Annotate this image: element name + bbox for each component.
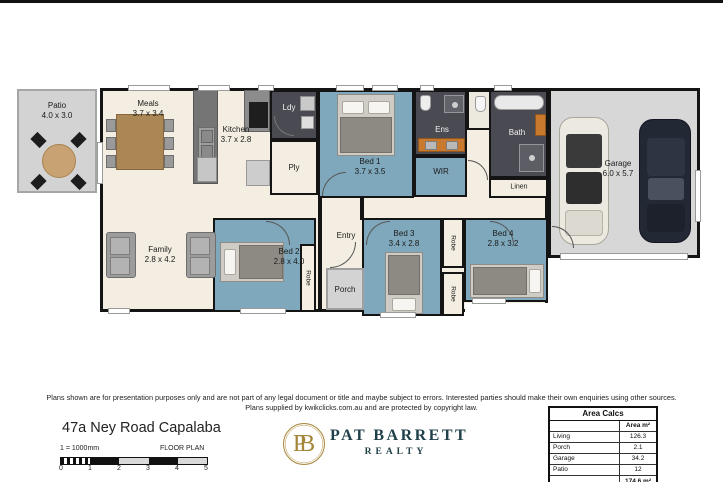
bed1-blanket xyxy=(340,117,392,153)
agency-brand: PAT BARRETT REALTY xyxy=(330,427,462,457)
car-white-roof xyxy=(566,134,602,168)
dining-chair xyxy=(164,119,174,132)
scale-segment xyxy=(119,458,148,464)
area-table-title: Area Calcs xyxy=(550,408,656,421)
car-dark xyxy=(639,119,691,243)
area-total-value: 174.6 m² xyxy=(619,476,656,482)
disclaimer-line1: Plans shown are for presentation purpose… xyxy=(0,393,723,402)
room-label-patio: Patio 4.0 x 3.0 xyxy=(42,101,73,121)
patio-chair xyxy=(70,132,86,148)
patio-dims: 4.0 x 3.0 xyxy=(42,111,73,121)
family-name: Family xyxy=(145,245,176,255)
ens-shower xyxy=(444,95,464,113)
room-label-family: Family 2.8 x 4.2 xyxy=(145,245,176,265)
car-dark-windshield xyxy=(648,178,684,200)
bed1-dims: 3.7 x 3.5 xyxy=(355,167,386,177)
window xyxy=(108,308,130,314)
area-row-label: Porch xyxy=(550,443,619,453)
window xyxy=(336,85,364,91)
ens-toilet xyxy=(420,95,431,111)
dining-chair xyxy=(164,137,174,150)
room-label-robe-lower: Robe xyxy=(450,286,457,302)
bed3-pillow xyxy=(392,298,416,311)
window xyxy=(494,85,512,91)
area-row-value: 2.1 xyxy=(619,443,656,453)
room-label-laundry: Ldy xyxy=(283,103,296,113)
bed4-bed xyxy=(470,264,544,298)
room-label-bed3: Bed 3 3.4 x 2.8 xyxy=(389,229,420,249)
scale-segment xyxy=(61,458,90,464)
area-table-row: Garage 34.2 xyxy=(550,454,656,465)
bath-name: Bath xyxy=(509,128,525,137)
car-white-sunroof xyxy=(566,172,602,204)
bed3-dims: 3.4 x 2.8 xyxy=(389,239,420,249)
area-row-value: 12 xyxy=(619,465,656,475)
wir-name: WIR xyxy=(433,167,449,176)
sofa-cushion xyxy=(110,237,130,255)
scale-tick: 0 xyxy=(59,465,63,472)
bed4-name: Bed 4 xyxy=(488,229,519,239)
patio-chair xyxy=(30,132,46,148)
room-wc xyxy=(467,90,491,130)
bed1-pillow xyxy=(368,101,390,114)
scale-ratio-label: 1 = 1000mm xyxy=(60,445,99,452)
kitchen-fridge xyxy=(246,160,270,186)
bed1-pillow xyxy=(342,101,364,114)
sofa-cushion xyxy=(110,257,130,275)
garage-dims: 6.0 x 5.7 xyxy=(603,169,634,179)
patio-chair xyxy=(30,174,46,190)
bath-shower xyxy=(519,144,544,172)
room-label-porch: Porch xyxy=(335,285,356,295)
scale-tick: 4 xyxy=(175,465,179,472)
area-table-row: Porch 2.1 xyxy=(550,443,656,454)
footer-divider xyxy=(0,0,723,3)
laundry-tub xyxy=(301,116,314,129)
room-label-pantry: Ply xyxy=(288,163,299,173)
sofa-cushion xyxy=(190,237,210,255)
car-white-hood xyxy=(565,210,603,236)
garage-window xyxy=(695,170,701,222)
garage-name: Garage xyxy=(603,159,634,169)
bath-cabinet xyxy=(535,114,546,136)
area-header-spacer xyxy=(550,421,619,431)
bed3-blanket xyxy=(388,255,420,295)
garage-door-opening xyxy=(560,253,688,260)
dining-table xyxy=(116,114,164,170)
window xyxy=(128,85,170,91)
bed3-name: Bed 3 xyxy=(389,229,420,239)
patio-table xyxy=(42,144,76,178)
bath-tub xyxy=(494,95,544,110)
window xyxy=(258,85,274,91)
scale-segment xyxy=(90,458,119,464)
room-label-garage: Garage 6.0 x 5.7 xyxy=(603,159,634,179)
car-dark-hood xyxy=(647,204,685,232)
dining-chair xyxy=(164,155,174,168)
patio-chair xyxy=(70,174,86,190)
room-label-linen: Linen xyxy=(510,184,527,193)
patio-name: Patio xyxy=(42,101,73,111)
family-sofa xyxy=(186,232,216,278)
agency-name: PAT BARRETT xyxy=(330,427,462,445)
room-label-ensuite: Ens xyxy=(435,125,449,135)
sink-bowl xyxy=(201,130,213,143)
car-dark-roof xyxy=(647,138,685,176)
exterior-mask xyxy=(465,303,548,313)
area-row-value: 34.2 xyxy=(619,454,656,464)
robe-name: Robe xyxy=(450,286,457,302)
property-address: 47a Ney Road Capalaba xyxy=(62,420,221,436)
ens-basin xyxy=(425,141,437,150)
room-label-bath: Bath xyxy=(509,128,525,138)
area-row-label: Patio xyxy=(550,465,619,475)
bed3-bed xyxy=(385,252,423,314)
area-row-label: Garage xyxy=(550,454,619,464)
scale-tick: 2 xyxy=(117,465,121,472)
room-label-bed2-robe: Robe xyxy=(305,270,312,286)
window xyxy=(472,298,506,304)
window xyxy=(240,308,286,314)
room-label-bed1: Bed 1 3.7 x 3.5 xyxy=(355,157,386,177)
meals-dims: 3.7 x 3.4 xyxy=(133,109,164,119)
scale-tick: 1 xyxy=(88,465,92,472)
area-total-spacer xyxy=(550,476,619,482)
ens-name: Ens xyxy=(435,125,449,134)
bed2-pillow xyxy=(224,249,236,275)
bed2-dims: 2.8 x 4.0 xyxy=(274,257,305,267)
entry-name: Entry xyxy=(337,231,356,240)
room-label-entry: Entry xyxy=(337,231,356,241)
plan-type-label: FLOOR PLAN xyxy=(160,445,204,452)
dining-chair xyxy=(106,155,116,168)
room-label-meals: Meals 3.7 x 3.4 xyxy=(133,99,164,119)
area-row-label: Living xyxy=(550,432,619,442)
agency-subtitle: REALTY xyxy=(330,447,462,457)
kitchen-dims: 3.7 x 2.8 xyxy=(221,135,252,145)
bed4-dims: 2.8 x 3.2 xyxy=(488,239,519,249)
shower-drain xyxy=(452,102,458,108)
area-calcs-table: Area Calcs Area m² Living 126.3 Porch 2.… xyxy=(548,406,658,482)
room-laundry xyxy=(270,90,318,140)
floorplan-page: Patio 4.0 x 3.0 Garage 6.0 x 5.7 xyxy=(0,0,723,482)
room-label-wir: WIR xyxy=(433,167,449,177)
room-label-bed4: Bed 4 2.8 x 3.2 xyxy=(488,229,519,249)
area-row-value: 126.3 xyxy=(619,432,656,442)
area-column-header: Area m² xyxy=(619,421,656,431)
bed2-name: Bed 2 xyxy=(274,247,305,257)
bed1-name: Bed 1 xyxy=(355,157,386,167)
window xyxy=(372,85,398,91)
window xyxy=(420,85,434,91)
logo-monogram: PB xyxy=(293,432,315,456)
bed1-bed xyxy=(337,94,395,156)
dining-chair xyxy=(106,137,116,150)
bed4-pillow xyxy=(529,269,541,293)
meals-name: Meals xyxy=(133,99,164,109)
kitchen-cooktop xyxy=(249,102,268,128)
kitchen-name: Kitchen xyxy=(221,125,252,135)
robe-name: Robe xyxy=(450,235,457,251)
wall-entry-left xyxy=(318,196,322,312)
area-table-row: Patio 12 xyxy=(550,465,656,476)
area-table-row: Living 126.3 xyxy=(550,432,656,443)
sofa-cushion xyxy=(190,257,210,275)
agency-logo-icon: PB xyxy=(283,423,325,465)
kitchen-sink xyxy=(198,127,215,161)
ply-name: Ply xyxy=(288,163,299,172)
room-label-bed2: Bed 2 2.8 x 4.0 xyxy=(274,247,305,267)
room-ensuite xyxy=(414,90,467,156)
wc-toilet xyxy=(475,96,486,112)
dining-chair xyxy=(106,119,116,132)
shower-drain xyxy=(529,155,535,161)
ldy-name: Ldy xyxy=(283,103,296,112)
kitchen-bench-end xyxy=(197,157,217,182)
area-table-total-row: 174.6 m² xyxy=(550,476,656,482)
scale-bar xyxy=(60,457,208,465)
room-label-kitchen: Kitchen 3.7 x 2.8 xyxy=(221,125,252,145)
window xyxy=(380,312,416,318)
bed4-blanket xyxy=(473,267,527,295)
scale-tick: 5 xyxy=(204,465,208,472)
room-label-robe-upper: Robe xyxy=(450,235,457,251)
window xyxy=(198,85,230,91)
wall-entry-right xyxy=(360,196,364,220)
linen-name: Linen xyxy=(510,184,527,191)
porch-name: Porch xyxy=(335,285,356,294)
area-table-header-row: Area m² xyxy=(550,421,656,432)
robe-name: Robe xyxy=(305,270,312,286)
ens-vanity xyxy=(418,138,465,152)
scale-segment xyxy=(149,458,178,464)
family-dims: 2.8 x 4.2 xyxy=(145,255,176,265)
car-white xyxy=(559,117,609,245)
laundry-washer xyxy=(300,96,315,111)
family-sofa xyxy=(106,232,136,278)
scale-segment xyxy=(178,458,207,464)
ens-basin xyxy=(446,141,458,150)
window xyxy=(97,142,103,184)
kitchen-island xyxy=(193,90,218,184)
scale-tick: 3 xyxy=(146,465,150,472)
